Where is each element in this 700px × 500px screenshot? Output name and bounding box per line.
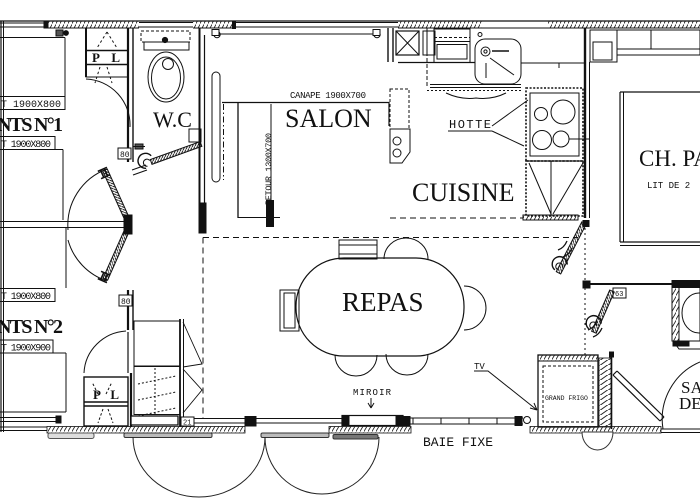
svg-text:DE: DE [679, 394, 700, 413]
svg-text:W.C: W.C [153, 107, 192, 132]
svg-text:CANAPE 1900X700: CANAPE 1900X700 [290, 91, 366, 101]
svg-text:80: 80 [120, 151, 130, 160]
svg-text:T 1900X800: T 1900X800 [1, 292, 51, 303]
svg-text:LIT DE 2: LIT DE 2 [647, 181, 690, 191]
svg-text:CUISINE: CUISINE [412, 178, 515, 207]
svg-text:MIROIR: MIROIR [353, 388, 392, 398]
svg-text:RETOUR 1300X700: RETOUR 1300X700 [264, 133, 274, 205]
svg-text:SALON: SALON [285, 104, 372, 133]
svg-text:GRAND FRIGO: GRAND FRIGO [545, 395, 588, 402]
svg-text:21: 21 [183, 420, 191, 428]
svg-text:NTS N°1: NTS N°1 [0, 114, 63, 136]
svg-text:CH. PAR: CH. PAR [639, 146, 700, 171]
svg-text:80: 80 [121, 298, 131, 307]
svg-text:BAIE FIXE: BAIE FIXE [423, 435, 493, 450]
svg-text:63: 63 [615, 291, 623, 299]
svg-text:HOTTE: HOTTE [449, 118, 491, 132]
svg-text:REPAS: REPAS [342, 287, 424, 317]
svg-text:NTS N°2: NTS N°2 [0, 316, 63, 338]
svg-text:T 1900X800: T 1900X800 [1, 100, 61, 111]
